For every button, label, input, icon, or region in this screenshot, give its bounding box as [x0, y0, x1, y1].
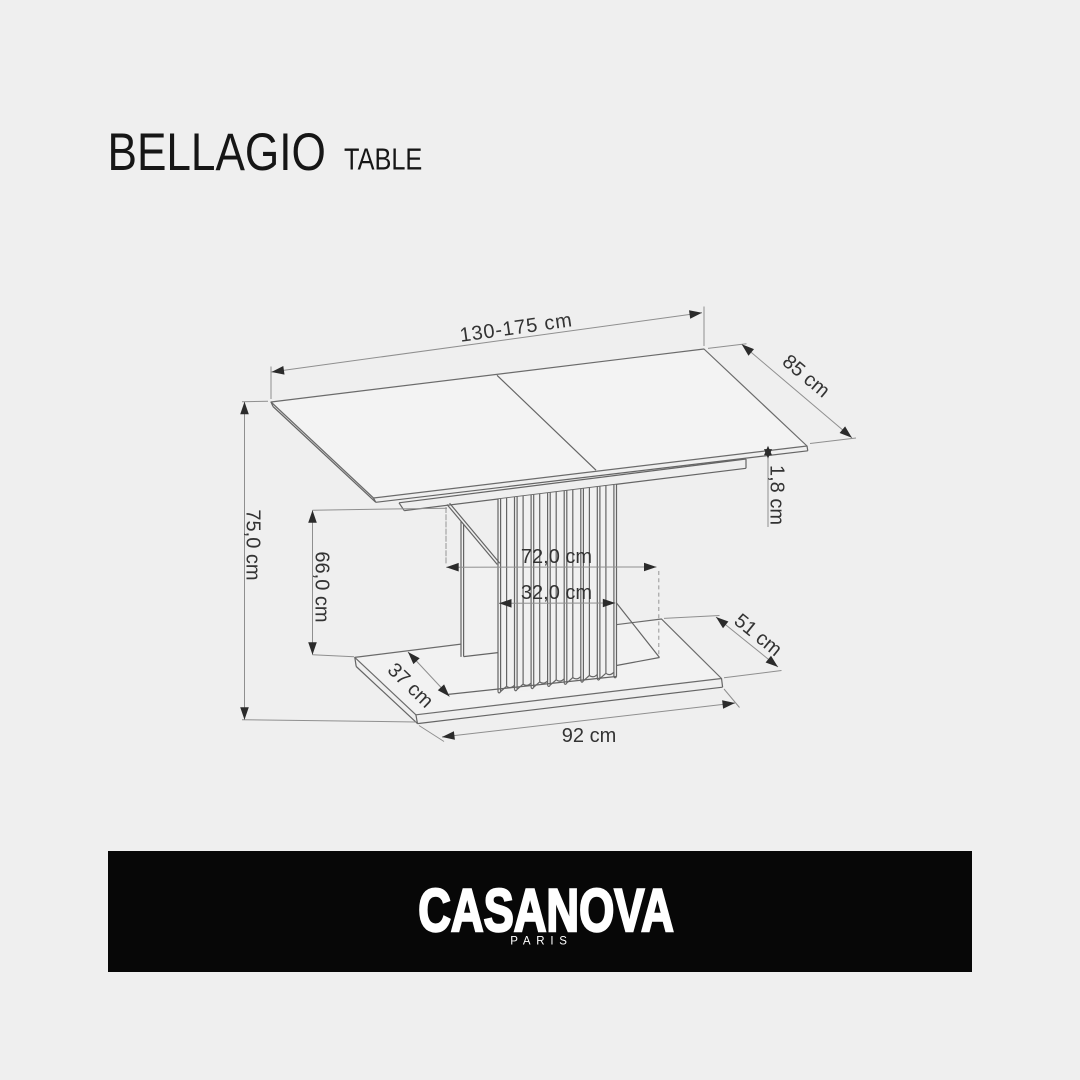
svg-text:TABLE: TABLE [344, 142, 422, 176]
svg-text:66,0 cm: 66,0 cm [311, 551, 333, 622]
svg-text:72,0 cm: 72,0 cm [521, 546, 592, 568]
svg-text:BELLAGIO: BELLAGIO [108, 123, 326, 182]
svg-text:1,8 cm: 1,8 cm [766, 465, 788, 525]
svg-text:92 cm: 92 cm [562, 725, 616, 747]
svg-text:32,0 cm: 32,0 cm [521, 582, 592, 604]
svg-text:75,0 cm: 75,0 cm [242, 509, 264, 580]
svg-text:PARIS: PARIS [510, 936, 572, 948]
